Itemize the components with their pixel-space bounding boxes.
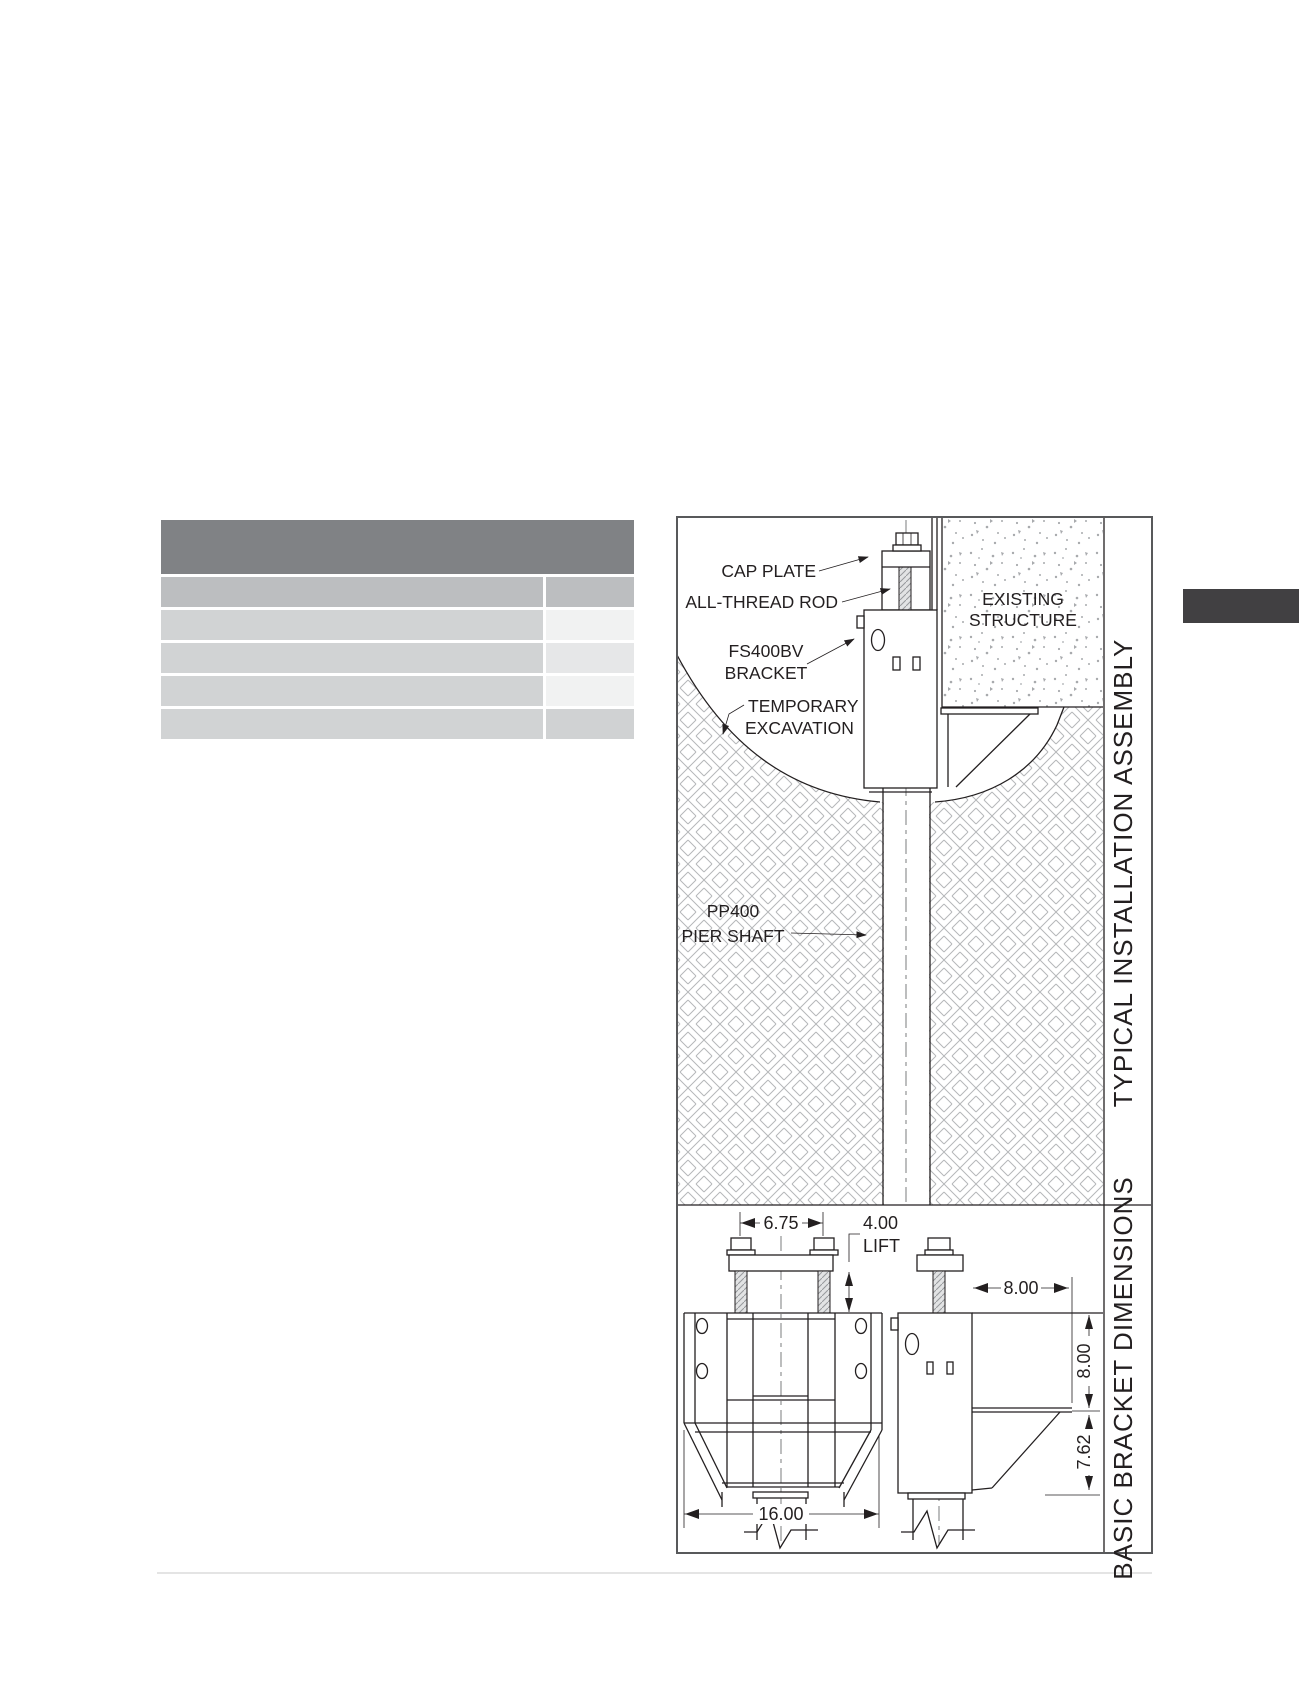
dim-bracket-width: 16.00 <box>758 1504 803 1524</box>
excavation-label-line1: TEMPORARY <box>748 696 859 716</box>
excavation-label-line2: EXCAVATION <box>745 718 854 738</box>
section-title-dimensions: BASIC BRACKET DIMENSIONS <box>1108 1176 1138 1580</box>
dim-bolt-spacing: 6.75 <box>763 1213 798 1233</box>
bracket-body <box>864 610 937 788</box>
dim-seat-depth: 7.62 <box>1074 1434 1094 1469</box>
cap-plate-label: CAP PLATE <box>721 561 816 581</box>
existing-structure-label-line1: EXISTING <box>982 589 1064 609</box>
bracket-body-side <box>898 1313 972 1493</box>
top-nut <box>896 533 918 545</box>
pier-label-line2: PIER SHAFT <box>681 926 784 946</box>
pipe-break-symbol <box>901 1511 975 1548</box>
bracket-installation-drawing: CAP PLATE ALL-THREAD ROD FS400BV BRACKET… <box>0 0 1299 1692</box>
bracket-label-line1: FS400BV <box>729 641 804 661</box>
pier-shaft <box>883 788 930 1205</box>
bracket-front-view <box>684 1236 882 1548</box>
section-title-assembly: TYPICAL INSTALLATION ASSEMBLY <box>1108 639 1138 1108</box>
cap-plate-front <box>729 1255 833 1271</box>
pier-label-line1: PP400 <box>707 901 760 921</box>
dim-lift-value: 4.00 <box>863 1213 898 1233</box>
all-thread-rod-label: ALL-THREAD ROD <box>685 592 838 612</box>
bracket-side-view <box>891 1238 1103 1548</box>
dim-bracket-height: 8.00 <box>1074 1343 1094 1378</box>
bracket-label-line2: BRACKET <box>725 663 808 683</box>
dim-lift-label: LIFT <box>863 1236 900 1256</box>
existing-structure-label-line2: STRUCTURE <box>969 610 1077 630</box>
dim-plate-depth: 8.00 <box>1003 1278 1038 1298</box>
assembly-view: CAP PLATE ALL-THREAD ROD FS400BV BRACKET… <box>677 518 1103 1205</box>
dimensions-view: 6.75 4.00 LIFT 16.00 8.00 <box>684 1212 1103 1548</box>
